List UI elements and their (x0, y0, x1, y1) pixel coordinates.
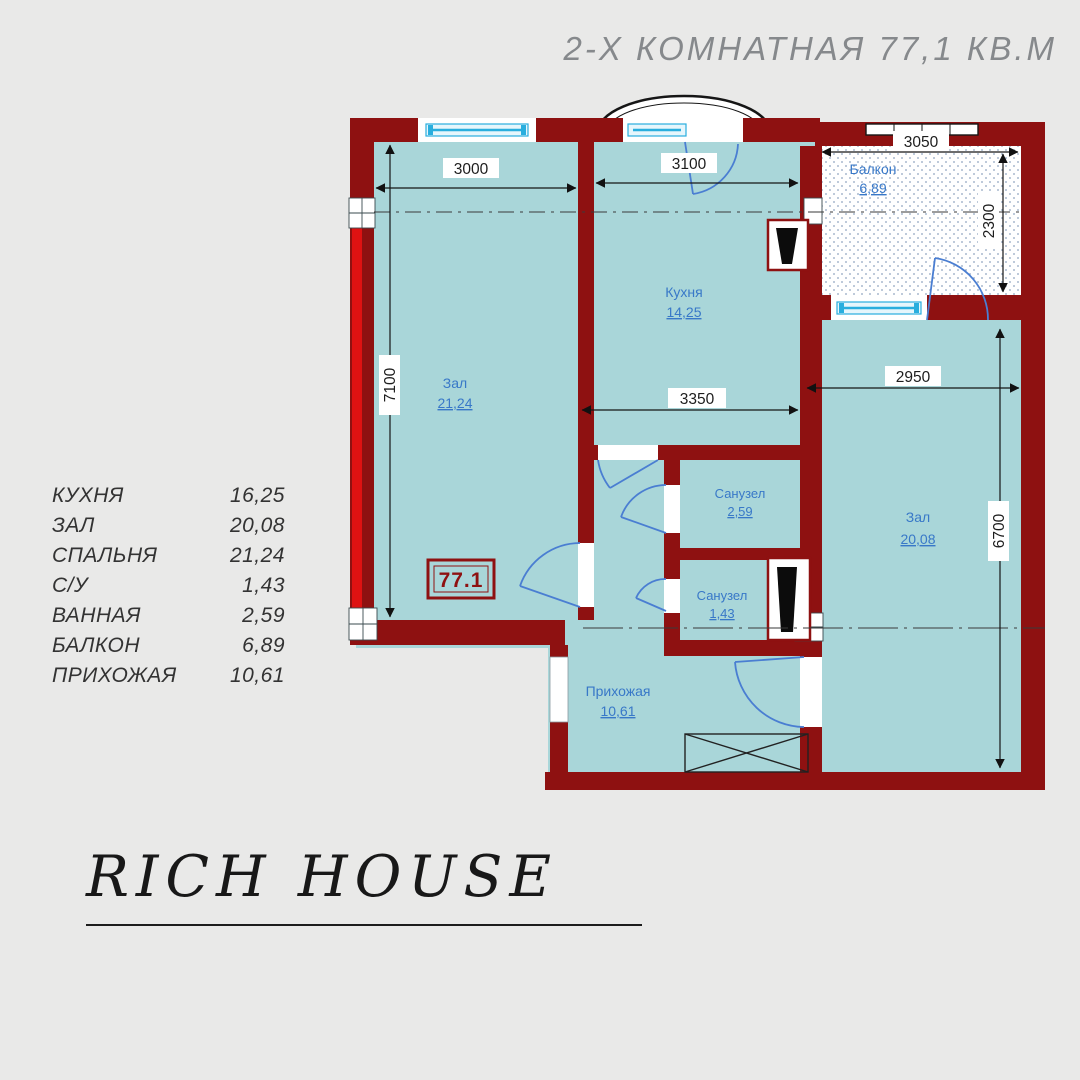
dim-label: 3350 (680, 391, 715, 408)
legend-value: 2,59 (205, 604, 285, 628)
room-name: Кухня (665, 284, 702, 300)
room-name: Балкон (850, 161, 897, 177)
dim-label: 2950 (896, 369, 931, 386)
room-area: 1,43 (709, 606, 734, 621)
dim-label: 7100 (382, 367, 399, 402)
legend-label: ВАННАЯ (52, 604, 141, 628)
wall-accent (352, 224, 362, 620)
window-icon (418, 118, 536, 142)
legend-label: КУХНЯ (52, 484, 124, 508)
legend-value: 20,08 (205, 514, 285, 538)
legend-row: ВАННАЯ 2,59 (52, 601, 285, 631)
room-name: Прихожая (586, 683, 651, 699)
room-area: 2,59 (727, 504, 752, 519)
room-name: Зал (906, 509, 930, 525)
total-area-badge: 77.1 (428, 560, 494, 598)
room-area: 21,24 (437, 395, 472, 411)
legend-value: 21,24 (205, 544, 285, 568)
area-legend: КУХНЯ 16,25 ЗАЛ 20,08 СПАЛЬНЯ 21,24 С/У … (52, 481, 285, 691)
vent-shaft-icon (768, 220, 808, 270)
room-floor (348, 124, 1042, 802)
legend-row: СПАЛЬНЯ 21,24 (52, 541, 285, 571)
poster-canvas: 2-Х КОМНАТНАЯ 77,1 КВ.М КУХНЯ 16,25 ЗАЛ … (0, 0, 1080, 1080)
legend-label: ЗАЛ (52, 514, 95, 538)
page-title: 2-Х КОМНАТНАЯ 77,1 КВ.М (564, 30, 1057, 68)
legend-value: 6,89 (205, 634, 285, 658)
room-area: 20,08 (900, 531, 935, 547)
room-name: Санузел (715, 486, 766, 501)
dim-label: 2300 (981, 203, 998, 238)
brand-logo: RICH HOUSE (86, 844, 558, 910)
dim-label: 3000 (454, 161, 489, 178)
legend-label: ПРИХОЖАЯ (52, 664, 177, 688)
legend-value: 1,43 (205, 574, 285, 598)
window-icon (623, 118, 743, 142)
room-area: 10,61 (600, 703, 635, 719)
legend-label: БАЛКОН (52, 634, 140, 658)
legend-row: БАЛКОН 6,89 (52, 631, 285, 661)
dim-label: 3100 (672, 156, 707, 173)
badge-value: 77.1 (439, 569, 484, 592)
legend-row: ПРИХОЖАЯ 10,61 (52, 661, 285, 691)
legend-label: СПАЛЬНЯ (52, 544, 157, 568)
room-area: 6,89 (859, 180, 886, 196)
room-name: Санузел (697, 588, 748, 603)
dim-label: 6700 (991, 513, 1008, 548)
dim-label: 3050 (904, 134, 939, 151)
legend-value: 10,61 (205, 664, 285, 688)
legend-label: С/У (52, 574, 88, 598)
floor-plan: 3000 3100 3350 3050 2950 7100 2300 6700 … (348, 92, 1048, 802)
legend-row: КУХНЯ 16,25 (52, 481, 285, 511)
window-icon (831, 295, 927, 320)
room-area: 14,25 (666, 304, 701, 320)
legend-row: С/У 1,43 (52, 571, 285, 601)
brand-underline (86, 924, 642, 926)
room-name: Зал (443, 375, 467, 391)
legend-value: 16,25 (205, 484, 285, 508)
legend-row: ЗАЛ 20,08 (52, 511, 285, 541)
